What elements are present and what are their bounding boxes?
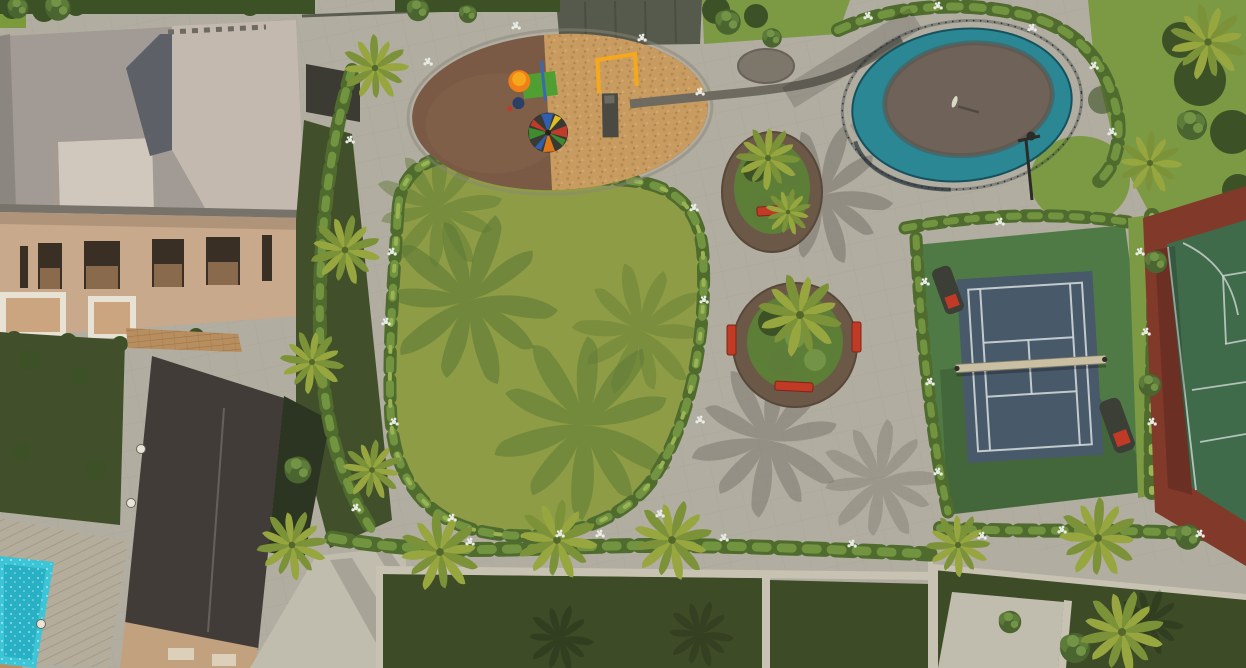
concrete-pad [938, 592, 1064, 668]
boundary-wall [762, 576, 770, 668]
plaza-inlay-circle [738, 49, 794, 83]
park-bench [852, 322, 861, 352]
basketball-court-area [1143, 186, 1246, 566]
park-bench [727, 325, 736, 355]
boundary-wall [928, 560, 938, 668]
residential-plot [770, 580, 930, 668]
annex-building [125, 356, 284, 650]
park-bench [775, 381, 813, 392]
backyard-lawn [0, 332, 125, 525]
aerial-render [0, 0, 1246, 668]
tennis-area [905, 216, 1160, 515]
render-canvas [0, 0, 1246, 668]
